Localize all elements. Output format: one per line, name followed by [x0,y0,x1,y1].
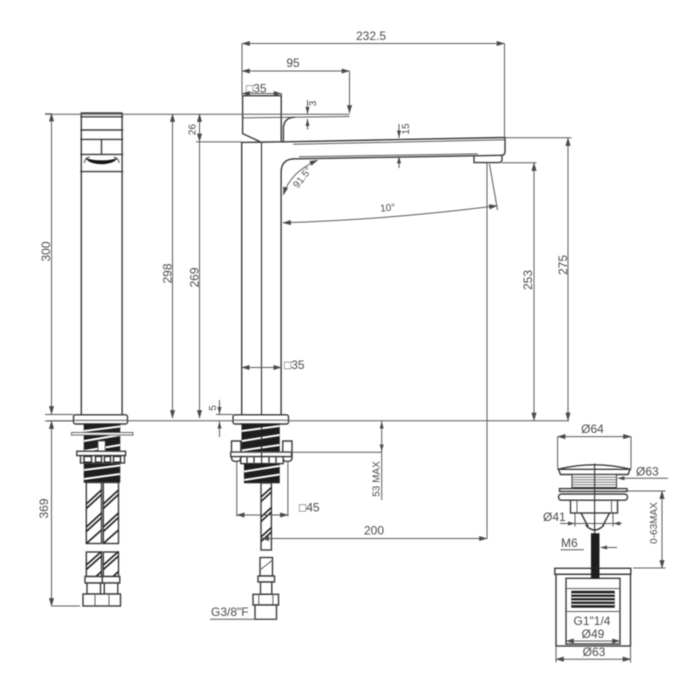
svg-text:Ø41: Ø41 [543,510,566,524]
svg-text:Ø64: Ø64 [581,422,604,436]
svg-text:369: 369 [37,498,51,518]
svg-text:15: 15 [401,123,412,135]
svg-text:5: 5 [208,405,219,411]
svg-text:232.5: 232.5 [356,29,386,43]
svg-text:269: 269 [188,267,202,287]
svg-text:Ø63: Ø63 [583,645,606,659]
svg-text:298: 298 [161,263,175,283]
svg-text:M6: M6 [561,536,578,550]
svg-text:10°: 10° [380,202,396,215]
svg-text:200: 200 [364,524,384,538]
svg-text:253: 253 [521,270,535,290]
svg-text:53 MAX: 53 MAX [372,461,383,497]
svg-text:0-63MAX: 0-63MAX [649,502,660,544]
svg-text:□45: □45 [299,501,320,515]
svg-text:G3/8"F: G3/8"F [211,605,249,619]
svg-text:300: 300 [39,241,53,261]
svg-text:□35: □35 [284,358,305,372]
svg-text:G1"1/4: G1"1/4 [574,614,611,628]
svg-text:□35: □35 [246,82,267,96]
svg-text:Ø63: Ø63 [636,465,659,479]
svg-text:26: 26 [188,124,199,136]
svg-text:3: 3 [308,100,319,106]
svg-text:Ø49: Ø49 [582,627,605,641]
svg-text:95: 95 [286,56,300,70]
svg-text:275: 275 [556,255,570,275]
